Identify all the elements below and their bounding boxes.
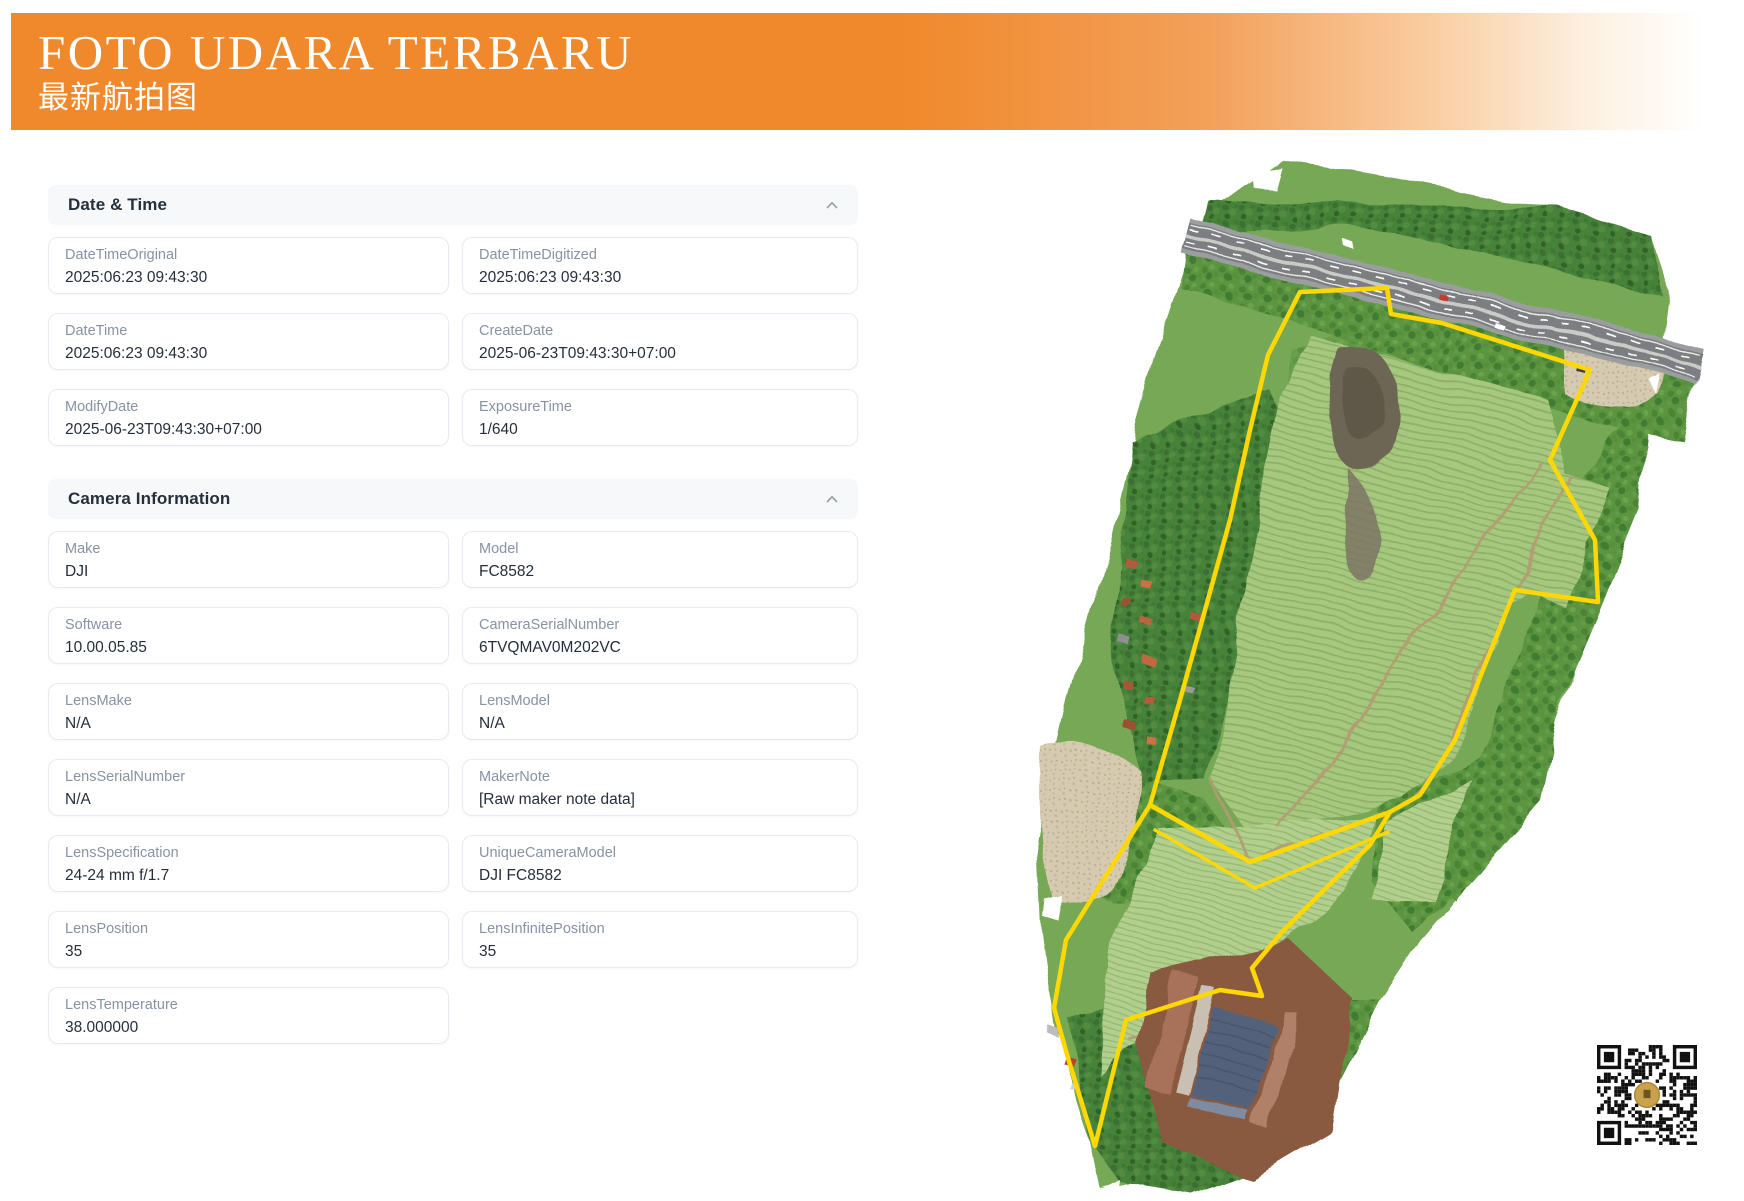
field-value: 24-24 mm f/1.7 (65, 865, 432, 886)
field-card: MakerNote [Raw maker note data] (462, 759, 858, 816)
field-label: LensPosition (65, 920, 432, 939)
field-label: Make (65, 540, 432, 559)
chevron-up-icon (826, 201, 838, 209)
field-value: 10.00.05.85 (65, 637, 432, 658)
field-card: LensTemperature 38.000000 (48, 987, 449, 1044)
field-label: DateTimeDigitized (479, 246, 841, 265)
field-label: LensTemperature (65, 996, 432, 1015)
metadata-panel: Date & Time DateTimeOriginal 2025:06:23 … (48, 185, 858, 1044)
field-card: LensSerialNumber N/A (48, 759, 449, 816)
map-landmass (1038, 158, 1698, 1194)
field-card: ModifyDate 2025-06-23T09:43:30+07:00 (48, 389, 449, 446)
field-card: LensSpecification 24-24 mm f/1.7 (48, 835, 449, 892)
field-card: LensInfinitePosition 35 (462, 911, 858, 968)
field-label: ModifyDate (65, 398, 432, 417)
aerial-map (950, 140, 1744, 1196)
field-value: 2025:06:23 09:43:30 (479, 267, 841, 288)
banner-subtitle: 最新航拍图 (38, 79, 1721, 117)
field-value: N/A (479, 713, 841, 734)
field-value: N/A (65, 713, 432, 734)
field-value: 35 (479, 941, 841, 962)
chevron-up-icon (826, 495, 838, 503)
field-label: Software (65, 616, 432, 635)
field-value: 1/640 (479, 419, 841, 440)
page-banner: FOTO UDARA TERBARU 最新航拍图 (11, 13, 1721, 130)
field-label: LensInfinitePosition (479, 920, 841, 939)
field-card: DateTime 2025:06:23 09:43:30 (48, 313, 449, 370)
camera-information-cards: Make DJI Model FC8582 Software 10.00.05.… (48, 531, 858, 1044)
field-card: Software 10.00.05.85 (48, 607, 449, 664)
field-value: 2025-06-23T09:43:30+07:00 (479, 343, 841, 364)
field-value: N/A (65, 789, 432, 810)
qr-code (1597, 1045, 1697, 1145)
field-label: CameraSerialNumber (479, 616, 841, 635)
field-card: ExposureTime 1/640 (462, 389, 858, 446)
section-title: Camera Information (68, 489, 230, 509)
field-card: LensModel N/A (462, 683, 858, 740)
field-value: FC8582 (479, 561, 841, 582)
field-value: DJI (65, 561, 432, 582)
field-value: 6TVQMAV0M202VC (479, 637, 841, 658)
aerial-orthomosaic-image (950, 140, 1744, 1196)
field-card: Make DJI (48, 531, 449, 588)
field-card: DateTimeDigitized 2025:06:23 09:43:30 (462, 237, 858, 294)
field-label: ExposureTime (479, 398, 841, 417)
field-value: 35 (65, 941, 432, 962)
field-card: LensMake N/A (48, 683, 449, 740)
field-value: 2025-06-23T09:43:30+07:00 (65, 419, 432, 440)
field-card: CreateDate 2025-06-23T09:43:30+07:00 (462, 313, 858, 370)
field-label: LensMake (65, 692, 432, 711)
field-card: Model FC8582 (462, 531, 858, 588)
section-header-camera-information[interactable]: Camera Information (48, 479, 858, 519)
field-card: LensPosition 35 (48, 911, 449, 968)
field-card: DateTimeOriginal 2025:06:23 09:43:30 (48, 237, 449, 294)
section-header-date-time[interactable]: Date & Time (48, 185, 858, 225)
field-label: DateTimeOriginal (65, 246, 432, 265)
field-value: [Raw maker note data] (479, 789, 841, 810)
field-value: 2025:06:23 09:43:30 (65, 267, 432, 288)
field-label: LensSerialNumber (65, 768, 432, 787)
field-label: DateTime (65, 322, 432, 341)
field-value: 2025:06:23 09:43:30 (65, 343, 432, 364)
field-label: Model (479, 540, 841, 559)
field-value: DJI FC8582 (479, 865, 841, 886)
date-time-cards: DateTimeOriginal 2025:06:23 09:43:30 Dat… (48, 237, 858, 446)
field-card: CameraSerialNumber 6TVQMAV0M202VC (462, 607, 858, 664)
field-value: 38.000000 (65, 1017, 432, 1038)
field-label: LensSpecification (65, 844, 432, 863)
qr-code-image (1597, 1045, 1697, 1145)
banner-title: FOTO UDARA TERBARU (38, 13, 1721, 79)
field-label: MakerNote (479, 768, 841, 787)
section-title: Date & Time (68, 195, 167, 215)
field-card: UniqueCameraModel DJI FC8582 (462, 835, 858, 892)
field-label: UniqueCameraModel (479, 844, 841, 863)
field-label: CreateDate (479, 322, 841, 341)
field-label: LensModel (479, 692, 841, 711)
